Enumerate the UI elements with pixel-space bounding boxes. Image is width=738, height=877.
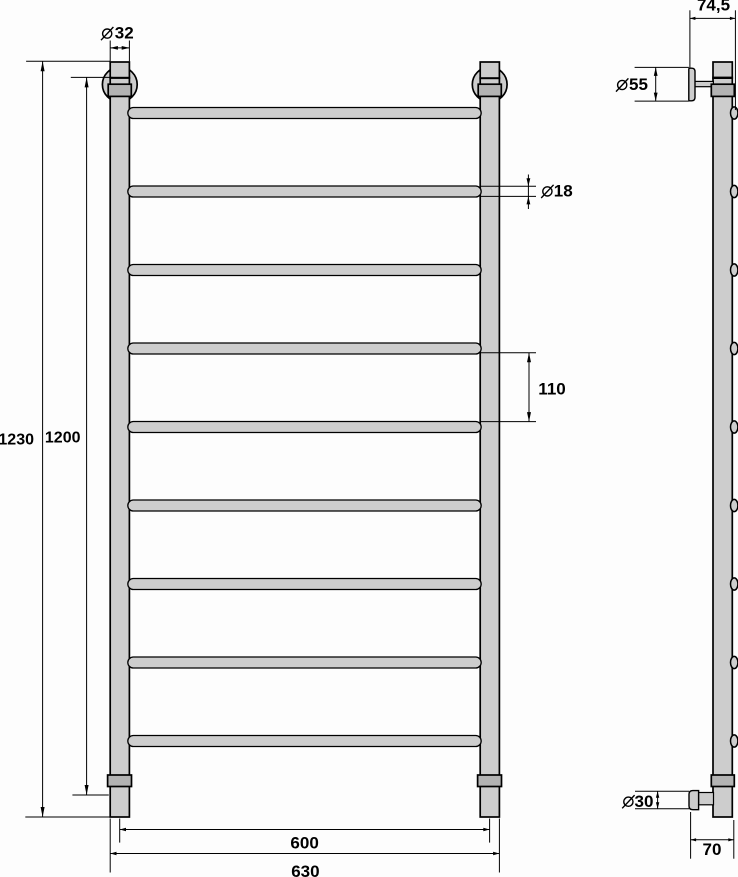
svg-text:1200: 1200 bbox=[45, 430, 81, 447]
svg-text:18: 18 bbox=[554, 182, 573, 201]
svg-text:110: 110 bbox=[538, 379, 565, 398]
svg-text:30: 30 bbox=[635, 792, 654, 811]
svg-text:55: 55 bbox=[629, 75, 648, 94]
svg-text:630: 630 bbox=[291, 862, 319, 877]
svg-text:600: 600 bbox=[290, 834, 318, 853]
svg-text:70: 70 bbox=[703, 840, 722, 859]
svg-text:74,5: 74,5 bbox=[697, 0, 730, 14]
svg-text:1230: 1230 bbox=[0, 432, 34, 449]
svg-text:32: 32 bbox=[115, 24, 134, 43]
